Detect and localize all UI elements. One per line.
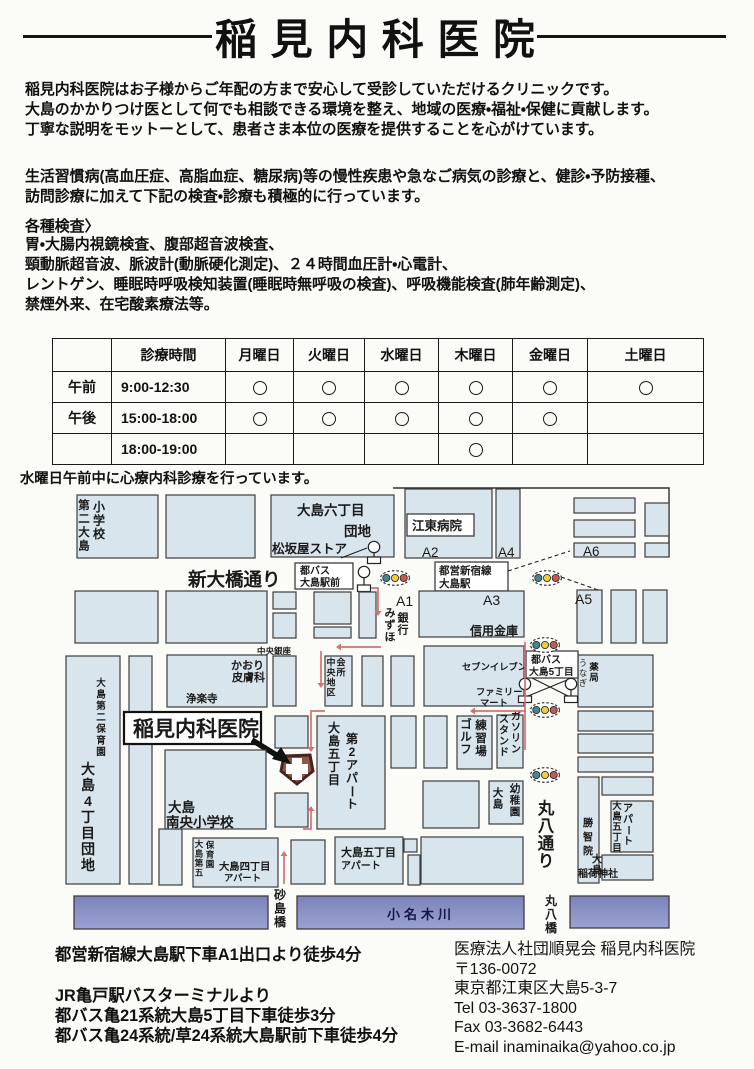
svg-text:団地: 団地 [344, 523, 371, 539]
svg-text:小名木川: 小名木川 [387, 907, 455, 922]
svg-text:アパート: アパート [224, 872, 261, 883]
svg-text:都営新宿線: 都営新宿線 [438, 564, 492, 577]
svg-text:行: 行 [397, 622, 409, 636]
svg-text:パ: パ [346, 771, 358, 785]
svg-text:大: 大 [592, 853, 602, 866]
svg-text:育: 育 [96, 735, 106, 747]
svg-text:ソ: ソ [511, 723, 521, 734]
svg-text:浄楽寺: 浄楽寺 [186, 692, 218, 705]
svg-text:学: 学 [93, 513, 105, 528]
svg-text:ー: ー [345, 785, 359, 797]
svg-text:幼: 幼 [510, 782, 521, 795]
svg-text:智: 智 [583, 831, 593, 844]
svg-text:大島: 大島 [168, 799, 195, 815]
svg-text:勝: 勝 [583, 817, 594, 830]
svg-text:大島駅: 大島駅 [439, 577, 471, 590]
svg-text:習: 習 [475, 732, 487, 745]
svg-text:小: 小 [93, 499, 105, 514]
svg-text:目: 目 [328, 773, 340, 787]
svg-text:う: う [579, 658, 587, 668]
svg-text:み: み [385, 606, 396, 619]
svg-text:ア: ア [346, 758, 358, 772]
svg-text:大島五丁目: 大島五丁目 [341, 845, 396, 859]
svg-text:り: り [538, 852, 555, 871]
svg-text:丁: 丁 [328, 760, 340, 774]
svg-text:大島駅前: 大島駅前 [300, 576, 340, 589]
svg-text:五: 五 [195, 868, 204, 878]
svg-text:A6: A6 [583, 544, 600, 559]
svg-text:第: 第 [77, 498, 90, 512]
svg-text:ず: ず [385, 617, 396, 631]
svg-text:島: 島 [328, 733, 340, 748]
svg-text:橋: 橋 [545, 920, 558, 935]
svg-text:大: 大 [195, 839, 204, 849]
svg-text:ー: ー [622, 825, 633, 835]
svg-text:大: 大 [612, 800, 622, 812]
svg-text:大島四丁目: 大島四丁目 [219, 860, 270, 873]
svg-text:二: 二 [96, 713, 106, 724]
svg-text:島: 島 [195, 849, 204, 859]
svg-text:マート: マート [480, 698, 508, 708]
svg-text:A5: A5 [575, 591, 592, 607]
svg-text:ド: ド [499, 747, 509, 759]
svg-text:薬: 薬 [589, 661, 599, 672]
svg-text:島: 島 [96, 689, 106, 701]
svg-text:タ: タ [499, 725, 509, 737]
svg-text:稚: 稚 [510, 793, 521, 806]
svg-text:かおり: かおり [231, 659, 264, 672]
svg-text:地: 地 [81, 857, 95, 873]
svg-text:練: 練 [474, 718, 487, 732]
svg-text:通: 通 [538, 834, 555, 853]
svg-text:4: 4 [84, 793, 92, 809]
svg-text:地: 地 [326, 677, 335, 688]
svg-text:ア: ア [623, 803, 633, 815]
svg-text:皮膚科: 皮膚科 [231, 670, 265, 684]
svg-text:江東病院: 江東病院 [412, 518, 463, 533]
svg-text:ス: ス [499, 714, 509, 726]
svg-text:丸: 丸 [537, 798, 555, 818]
svg-text:島: 島 [78, 538, 90, 552]
svg-text:ン: ン [511, 745, 521, 756]
svg-text:島: 島 [81, 777, 95, 793]
svg-text:大: 大 [328, 720, 340, 735]
svg-text:銀: 銀 [397, 610, 410, 624]
svg-text:アパート: アパート [341, 860, 381, 872]
svg-text:新大橋通り: 新大橋通り [187, 569, 281, 590]
svg-text:フ: フ [460, 744, 472, 756]
svg-text:パ: パ [623, 814, 633, 826]
svg-text:丁: 丁 [81, 809, 95, 825]
svg-text:中: 中 [326, 657, 335, 668]
svg-text:団: 団 [81, 841, 95, 857]
svg-text:都バス: 都バス [530, 653, 561, 666]
svg-text:ト: ト [623, 836, 633, 848]
svg-text:A4: A4 [498, 545, 515, 560]
svg-text:都バス: 都バス [299, 564, 330, 577]
svg-text:第: 第 [345, 731, 358, 746]
svg-text:大島六丁目: 大島六丁目 [297, 502, 365, 518]
svg-text:な: な [579, 668, 587, 678]
svg-text:砂: 砂 [273, 888, 286, 902]
svg-text:第: 第 [95, 700, 106, 712]
svg-text:丸: 丸 [544, 893, 558, 908]
svg-text:園: 園 [510, 806, 521, 818]
svg-text:五: 五 [328, 747, 340, 761]
svg-text:大: 大 [493, 786, 504, 799]
svg-text:A2: A2 [422, 545, 439, 560]
svg-text:島: 島 [493, 797, 504, 810]
svg-text:A1: A1 [396, 593, 413, 609]
svg-text:育: 育 [206, 850, 215, 860]
svg-text:ぎ: ぎ [579, 678, 587, 688]
svg-text:園: 園 [206, 859, 215, 869]
svg-text:大島5丁目: 大島5丁目 [529, 665, 574, 678]
svg-text:松坂屋ストア: 松坂屋ストア [272, 541, 347, 556]
svg-text:所: 所 [335, 667, 345, 678]
svg-text:橋: 橋 [274, 914, 287, 929]
svg-text:局: 局 [588, 672, 598, 682]
svg-text:校: 校 [93, 526, 106, 541]
svg-text:ン: ン [499, 737, 509, 748]
svg-text:第: 第 [194, 858, 204, 868]
svg-text:大: 大 [96, 677, 106, 689]
svg-text:会: 会 [336, 657, 346, 668]
svg-text:島: 島 [274, 901, 286, 916]
svg-text:南央小学校: 南央小学校 [166, 814, 234, 830]
svg-text:ゴ: ゴ [460, 717, 472, 731]
svg-text:園: 園 [96, 747, 106, 758]
svg-text:丁: 丁 [612, 833, 622, 844]
svg-text:ル: ル [460, 730, 472, 743]
svg-text:二: 二 [78, 513, 90, 525]
svg-text:目: 目 [81, 825, 95, 841]
svg-text:区: 区 [326, 688, 335, 698]
svg-text:大: 大 [78, 525, 90, 539]
svg-text:リ: リ [511, 733, 521, 745]
svg-text:ト: ト [346, 797, 358, 811]
svg-text:目: 目 [612, 843, 622, 854]
svg-text:保: 保 [205, 840, 215, 850]
svg-text:セブンイレブン: セブンイレブン [462, 661, 527, 672]
svg-text:五: 五 [612, 822, 622, 833]
svg-text:2: 2 [349, 745, 356, 759]
svg-text:場: 場 [475, 744, 487, 758]
svg-text:稲荷神社: 稲荷神社 [578, 867, 618, 880]
svg-text:島: 島 [612, 811, 622, 823]
svg-text:稲見内科医院: 稲見内科医院 [133, 717, 259, 741]
svg-text:八: 八 [545, 908, 557, 922]
svg-text:ファミリー: ファミリー [476, 687, 523, 697]
svg-text:央: 央 [326, 667, 336, 678]
svg-text:保: 保 [95, 723, 106, 735]
svg-text:信用金庫: 信用金庫 [469, 623, 518, 638]
svg-text:A3: A3 [483, 592, 500, 608]
svg-text:ほ: ほ [385, 630, 396, 643]
svg-text:八: 八 [538, 818, 555, 836]
svg-text:大: 大 [81, 761, 95, 777]
